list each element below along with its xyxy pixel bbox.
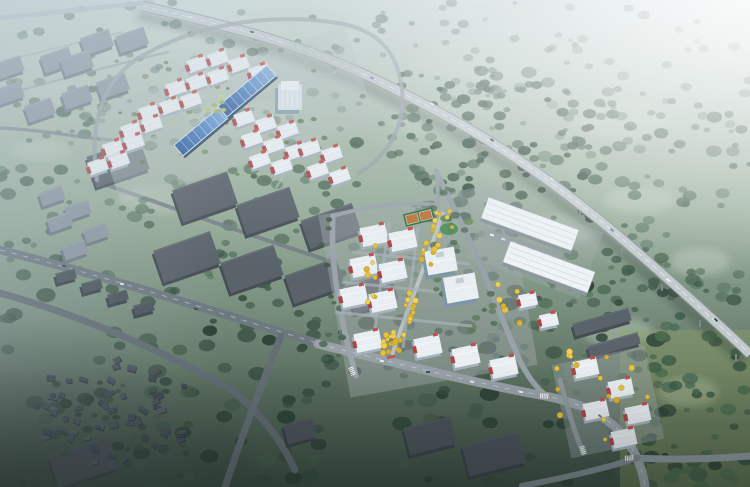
- atmosphere-overlays: [0, 0, 750, 487]
- aerial-masterplan-rendering: [0, 0, 750, 487]
- aerial-rendering-stage: [0, 0, 750, 487]
- bottom-shade: [0, 0, 750, 487]
